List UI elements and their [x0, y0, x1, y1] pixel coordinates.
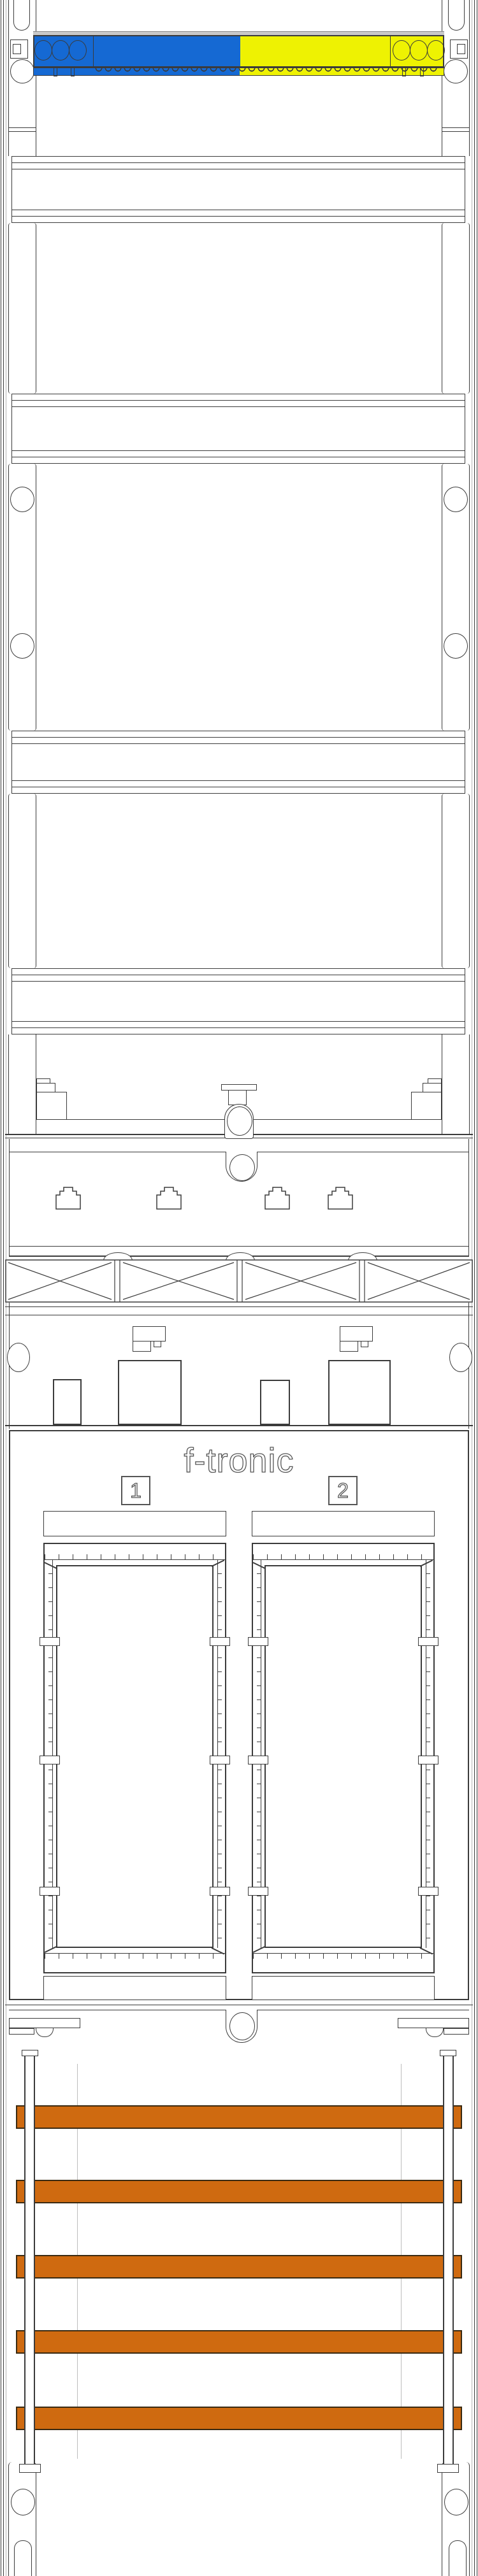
t-handle-stem [228, 1090, 247, 1105]
cross-brace-lattice [5, 1259, 473, 1303]
meter-window-1-glass [56, 1565, 214, 1948]
t-handle-hole [227, 1106, 252, 1136]
window-1-clip-l3 [40, 1887, 60, 1896]
window-1-top-ticks [45, 1554, 225, 1560]
busbar-5 [16, 2407, 462, 2430]
lower-bracket-left-step [9, 2028, 34, 2035]
busbar-support-left-foot [19, 2464, 41, 2473]
cable-cutout-3 [263, 1185, 291, 1210]
section-line-2 [5, 1315, 473, 1315]
terminal-hole-pe-2 [410, 40, 428, 61]
plug-clip-icon-2 [340, 1326, 373, 1342]
left-rail-segment-2 [8, 223, 36, 394]
din-rail-cover-3 [11, 731, 465, 794]
window-2-clip-r2 [418, 1756, 438, 1764]
terminal-hole-pe-1 [393, 40, 410, 61]
side-hole-right [449, 1343, 472, 1372]
lower-bracket-left [9, 2018, 80, 2028]
keyhole-hole-lower [229, 2012, 255, 2040]
plug-clip-icon-1 [133, 1326, 166, 1342]
window-2-clip-l3 [248, 1887, 268, 1896]
side-hole-left [7, 1343, 30, 1372]
mounting-bracket-right-inner [457, 44, 465, 54]
rail-hole-top-left [10, 59, 34, 83]
mounting-bracket-left-inner [13, 44, 21, 54]
terminal-hole-n-3 [69, 40, 87, 61]
plate-bottom-line-1 [9, 1246, 469, 1247]
busbar-support-right-cap [440, 2050, 456, 2056]
u-cutout-bottom-left [14, 2540, 32, 2576]
panel-baseline [5, 1425, 473, 1426]
lower-bracket-right-arc [426, 2028, 444, 2037]
rail-hole-mid-right-1 [444, 487, 468, 512]
terminal-block-divider-left [93, 36, 94, 67]
shoulder-step-right-3 [411, 1092, 442, 1120]
busbar-support-left [24, 2056, 35, 2465]
support-post-large-1 [118, 1360, 182, 1425]
window-1-clip-l1 [40, 1637, 60, 1646]
terminal-hole-pe-3 [427, 40, 445, 61]
busbar-4 [16, 2330, 462, 2354]
u-cutout-top-left [13, 0, 30, 31]
terminal-scallop-row [94, 68, 438, 76]
window-2-clip-r1 [418, 1637, 438, 1646]
busbar-3 [16, 2255, 462, 2279]
terminal-strip-body [33, 35, 444, 68]
right-rail-segment-4 [442, 794, 470, 968]
window-2-top-ticks [253, 1554, 433, 1560]
right-rail-segment-5 [442, 1034, 470, 1134]
rail-hole-top-right [444, 59, 468, 83]
field-2-label-strip [252, 1511, 435, 1536]
support-post-large-2 [328, 1360, 391, 1425]
window-2-clip-r3 [418, 1887, 438, 1896]
brand-logo: f-tronic [131, 1442, 347, 1480]
window-1-clip-l2 [40, 1756, 60, 1764]
plug-clip-icon-2-notch [361, 1341, 368, 1347]
busbar-support-left-cap [22, 2050, 38, 2056]
rail-hole-bottom-right [444, 2489, 468, 2515]
support-post-small-1 [53, 1379, 82, 1425]
terminal-tab-n-1 [54, 67, 57, 76]
u-cutout-top-right [448, 0, 465, 31]
plug-clip-icon-1-notch [154, 1341, 161, 1347]
window-2-clip-l2 [248, 1756, 268, 1764]
field-1-number-box: 1 [121, 1476, 150, 1505]
window-1-clip-r1 [210, 1637, 230, 1646]
field-1-number: 1 [130, 1479, 141, 1502]
field-2-number: 2 [337, 1479, 349, 1502]
window-1-clip-r3 [210, 1887, 230, 1896]
plug-clip-icon-1-foot [133, 1341, 151, 1352]
busbar-2 [16, 2180, 462, 2203]
support-post-small-2 [260, 1380, 290, 1425]
rail-joint-line-left [8, 127, 36, 132]
rail-joint-line-right [442, 127, 470, 132]
shoulder-step-left-3 [36, 1092, 67, 1120]
cable-cutout-4 [326, 1185, 354, 1210]
floor-line-right [252, 1119, 411, 1120]
lower-bracket-right [398, 2018, 469, 2028]
u-cutout-bottom-right [449, 2540, 467, 2576]
terminal-tab-n-2 [71, 67, 75, 76]
keyhole-hole-upper [229, 1154, 255, 1181]
window-2-base-strip [252, 1976, 435, 2000]
window-1-clip-r2 [210, 1756, 230, 1764]
terminal-tab-pe-2 [420, 67, 424, 76]
lower-bracket-right-step [444, 2028, 469, 2035]
section-line-1 [5, 1306, 473, 1307]
shoulder-step-left-2 [36, 1083, 55, 1092]
busbar-1 [16, 2105, 462, 2129]
window-1-bottom-ticks [45, 1953, 225, 1959]
terminal-tab-pe-1 [402, 67, 406, 76]
meter-board-drawing: f-tronic 1 2 [0, 0, 478, 2576]
rail-hole-mid-right-2 [444, 633, 468, 659]
right-rail-segment-2 [442, 223, 470, 394]
rail-hole-mid-left-1 [10, 487, 34, 512]
window-2-bottom-ticks [253, 1953, 433, 1959]
cable-cutout-1 [54, 1185, 82, 1210]
rail-hole-bottom-left [11, 2489, 35, 2515]
busbar-support-right [443, 2056, 454, 2465]
plug-clip-icon-2-foot [340, 1341, 358, 1352]
terminal-hole-n-2 [52, 40, 69, 61]
window-1-base-strip [43, 1976, 226, 2000]
field-1-label-strip [43, 1511, 226, 1536]
field-2-number-box: 2 [328, 1476, 358, 1505]
window-2-clip-l1 [248, 1637, 268, 1646]
din-rail-cover-1 [11, 156, 465, 223]
din-rail-cover-4 [11, 968, 465, 1034]
left-rail-segment-4 [8, 794, 36, 968]
terminal-block-divider-right [390, 36, 391, 67]
busbar-support-right-foot [437, 2464, 459, 2473]
left-rail-segment-5 [8, 1034, 36, 1134]
din-rail-cover-2 [11, 394, 465, 464]
cable-cutout-2 [155, 1185, 183, 1210]
shoulder-step-right-2 [423, 1083, 442, 1092]
panel-bottom-line [5, 2005, 473, 2005]
lower-bracket-left-arc [36, 2028, 54, 2037]
floor-line-left [67, 1119, 226, 1120]
rail-hole-mid-left-2 [10, 633, 34, 659]
terminal-hole-n-1 [34, 40, 52, 61]
meter-window-2-glass [264, 1565, 422, 1948]
